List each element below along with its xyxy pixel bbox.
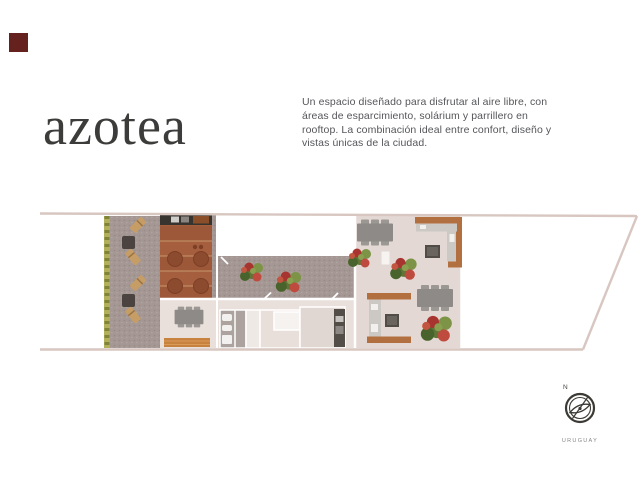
roof-notch	[217, 212, 355, 256]
slide: azotea Un espacio diseñado para disfruta…	[0, 0, 639, 484]
description-line: Un espacio diseñado para disfrutar al ai…	[302, 96, 570, 110]
floorplan	[38, 204, 639, 354]
interior-rooms	[164, 307, 345, 348]
planter-strip	[104, 216, 110, 348]
page-title: azotea	[43, 98, 187, 155]
compass: N	[557, 384, 603, 430]
solarium-deck	[160, 214, 212, 299]
wood-sideboard	[164, 338, 210, 347]
brand-logo-square	[9, 33, 28, 52]
description-line: vistas únicas de la ciudad.	[302, 137, 570, 151]
bench	[381, 251, 390, 265]
dining-table	[175, 307, 204, 328]
compass-north-label: N	[563, 384, 568, 391]
hallway	[246, 310, 260, 348]
description-line: áreas de esparcimiento, solárium y parri…	[302, 110, 570, 124]
compass-country-label: URUGUAY	[557, 438, 603, 444]
description: Un espacio diseñado para disfrutar al ai…	[302, 96, 570, 151]
dining-table	[417, 285, 453, 311]
dining-table	[357, 220, 393, 246]
description-line: rooftop. La combinación ideal entre conf…	[302, 124, 570, 138]
